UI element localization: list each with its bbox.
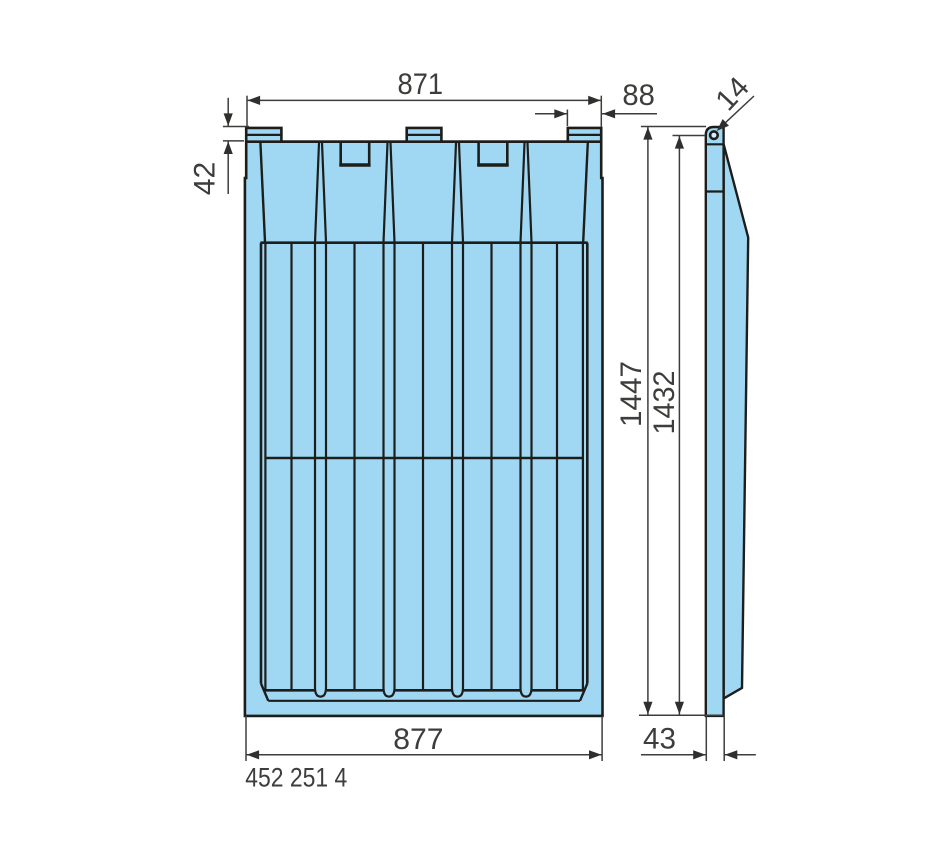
svg-text:88: 88 xyxy=(622,79,655,112)
svg-text:1432: 1432 xyxy=(648,371,681,435)
svg-text:877: 877 xyxy=(393,723,443,756)
svg-text:42: 42 xyxy=(189,162,222,196)
svg-text:1447: 1447 xyxy=(615,361,648,427)
svg-text:871: 871 xyxy=(398,68,444,101)
svg-text:452 251 4: 452 251 4 xyxy=(245,763,347,793)
svg-text:43: 43 xyxy=(643,722,676,755)
svg-text:14: 14 xyxy=(709,71,756,118)
